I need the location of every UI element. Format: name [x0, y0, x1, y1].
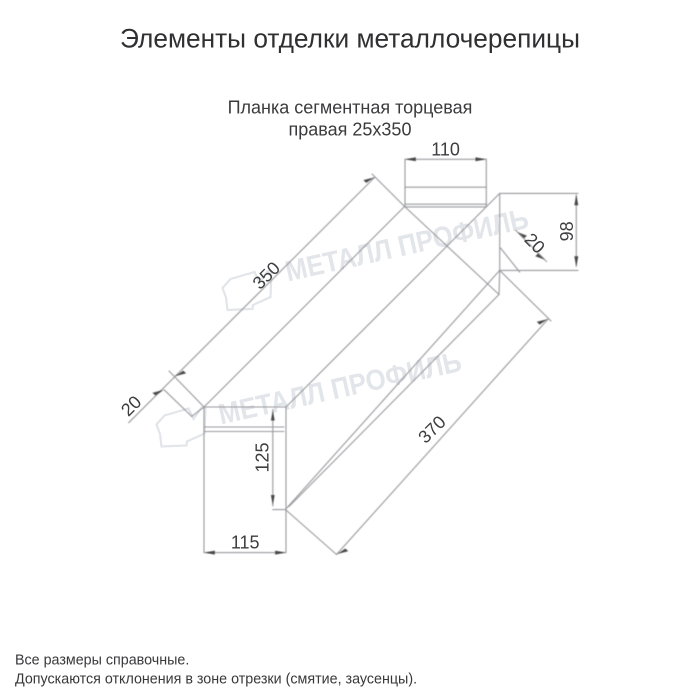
- svg-text:98: 98: [557, 221, 577, 241]
- svg-text:125: 125: [253, 442, 273, 472]
- svg-text:Элементы отделки металлочерепи: Элементы отделки металлочерепицы: [120, 24, 580, 54]
- svg-text:115: 115: [231, 533, 260, 553]
- svg-text:правая 25x350: правая 25x350: [289, 120, 412, 140]
- svg-text:Все размеры справочные.: Все размеры справочные.: [15, 653, 189, 669]
- svg-text:Допускаются отклонения в зоне: Допускаются отклонения в зоне отрезки (с…: [15, 672, 417, 688]
- svg-text:Планка сегментная торцевая: Планка сегментная торцевая: [228, 98, 473, 118]
- svg-text:110: 110: [431, 140, 460, 160]
